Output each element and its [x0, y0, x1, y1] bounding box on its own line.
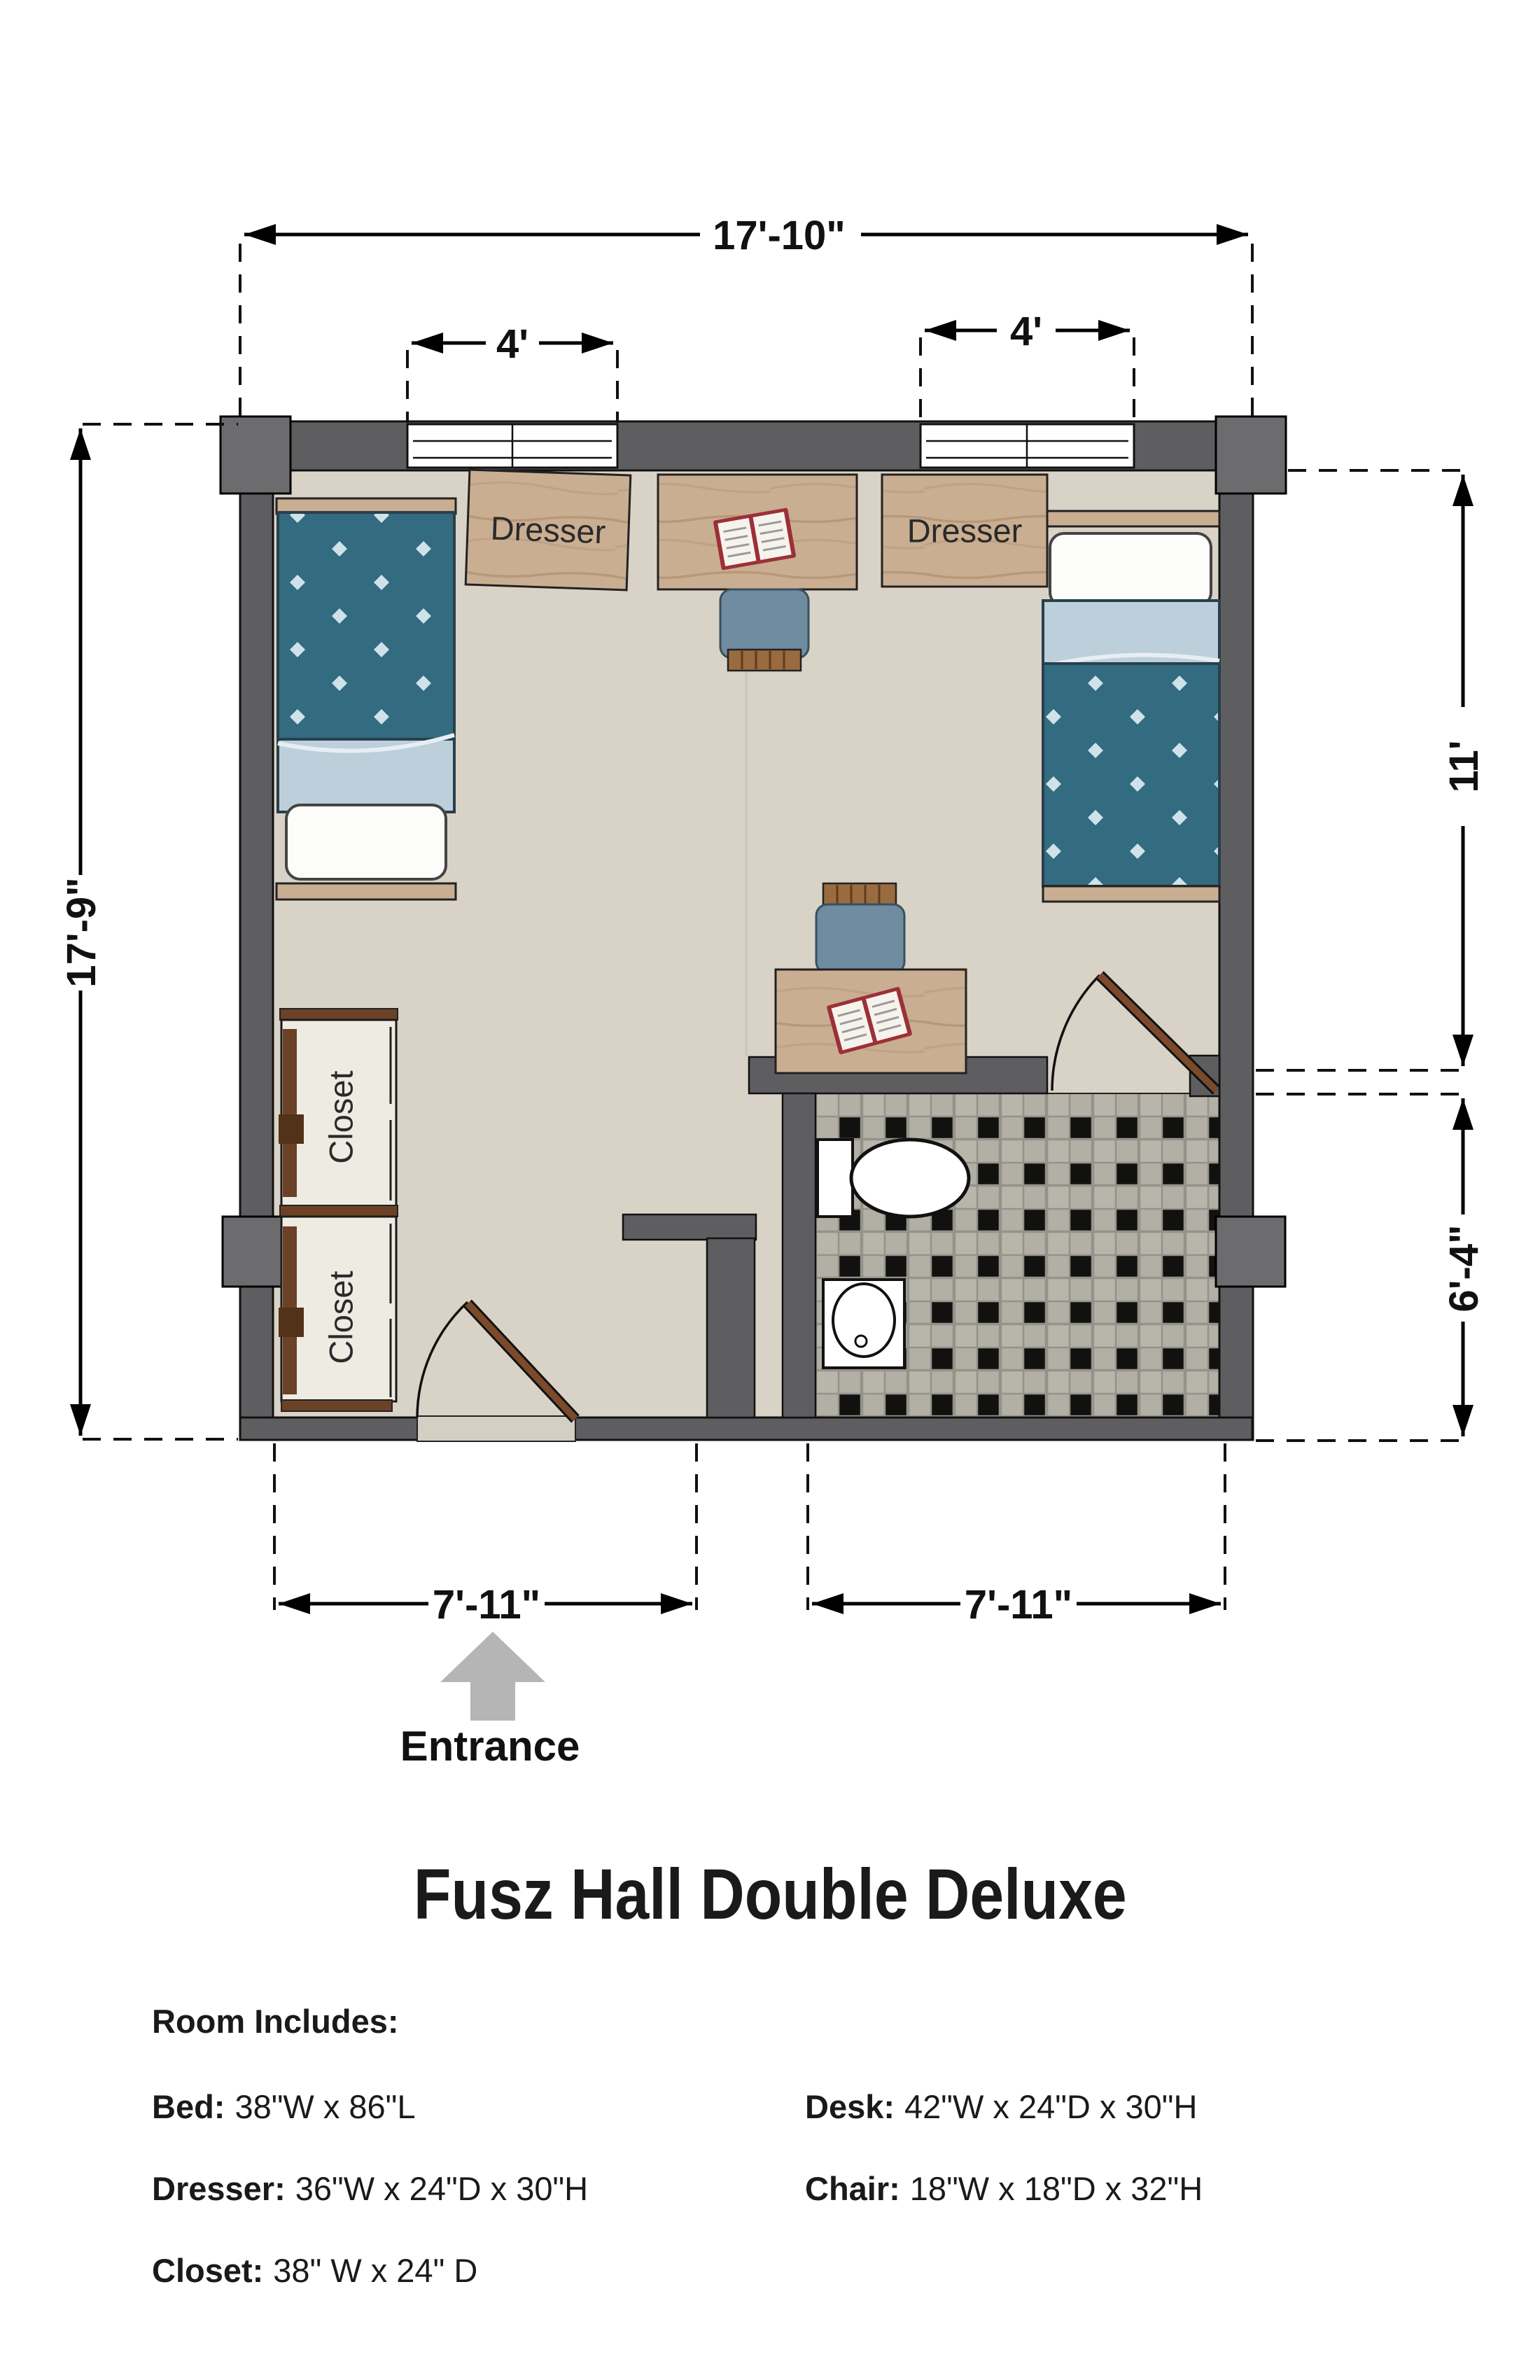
legend-heading: Room Includes: — [152, 2002, 399, 2040]
legend-item-value: 38" W x 24" D — [273, 2252, 477, 2289]
wall-bottom — [240, 1417, 1252, 1440]
floor-plan-page: Closet Closet Dresser Dresser — [0, 0, 1540, 2380]
entrance-marker: Entrance — [400, 1632, 580, 1770]
legend-item-label: Bed: — [152, 2088, 225, 2125]
closet-lower-label: Closet — [322, 1270, 359, 1364]
wing-wall-horizontal — [623, 1214, 756, 1240]
chair-top-back — [728, 650, 801, 671]
legend-item-label: Chair: — [805, 2170, 900, 2207]
svg-text:17'-9": 17'-9" — [59, 877, 104, 987]
pilaster-top-right — [1216, 416, 1286, 493]
chair-top — [720, 589, 808, 671]
chair-bottom-seat — [816, 904, 904, 973]
toilet-bowl — [851, 1140, 969, 1217]
chair-bottom — [816, 883, 904, 973]
legend-item-closet: Closet:38" W x 24" D — [152, 2251, 477, 2290]
dim-window-right: 4' — [925, 309, 1130, 354]
bed-left — [276, 498, 456, 899]
legend-item-dresser: Dresser:36"W x 24"D x 30"H — [152, 2169, 588, 2208]
svg-text:4': 4' — [496, 321, 528, 367]
svg-text:7'-11": 7'-11" — [433, 1582, 540, 1627]
bed-right — [1043, 511, 1219, 902]
entrance-arrow-icon — [440, 1632, 545, 1721]
desk-bottom — [776, 969, 966, 1073]
dresser-right: Dresser — [882, 475, 1047, 587]
chair-top-seat — [720, 589, 808, 658]
bed-right-blanket — [1043, 664, 1219, 886]
legend-item-value: 42"W x 24"D x 30"H — [904, 2088, 1197, 2125]
legend-item-label: Closet: — [152, 2252, 263, 2289]
legend-item-chair: Chair:18"W x 18"D x 32"H — [805, 2169, 1203, 2208]
bed-left-pillow — [286, 805, 446, 879]
pilaster-mid-right — [1216, 1217, 1285, 1287]
closets: Closet Closet — [279, 1009, 398, 1411]
toilet — [818, 1140, 969, 1217]
dim-overall-depth: 17'-9" — [59, 428, 104, 1436]
closet-upper-rod — [283, 1029, 297, 1197]
pilaster-top-left — [220, 416, 290, 493]
legend-item-value: 36"W x 24"D x 30"H — [295, 2170, 588, 2207]
dim-window-left: 4' — [412, 321, 613, 367]
bed-right-pillow — [1050, 533, 1211, 606]
closet-bottom-trim — [281, 1400, 392, 1411]
closet-upper-rod-block — [279, 1114, 304, 1144]
bed-left-footboard — [276, 883, 456, 899]
dim-overall-width: 17'-10" — [244, 213, 1248, 258]
chair-bottom-back — [823, 883, 896, 906]
svg-text:11': 11' — [1441, 740, 1487, 792]
closet-lower-rod-block — [279, 1308, 304, 1337]
entrance-label: Entrance — [400, 1723, 580, 1770]
bed-left-blanket — [278, 512, 454, 745]
legend-item-bed: Bed:38"W x 86"L — [152, 2087, 416, 2126]
dim-bottom-right: 7'-11" — [812, 1582, 1221, 1627]
svg-text:17'-10": 17'-10" — [713, 213, 846, 258]
legend-item-desk: Desk:42"W x 24"D x 30"H — [805, 2087, 1197, 2126]
legend-item-label: Desk: — [805, 2088, 895, 2125]
closet-top-trim — [280, 1009, 398, 1020]
dresser-left: Dresser — [465, 470, 631, 590]
svg-text:7'-11": 7'-11" — [965, 1582, 1072, 1627]
dim-bath-depth: 6'-4" — [1441, 1098, 1487, 1436]
toilet-tank — [818, 1140, 853, 1217]
window-left — [407, 424, 617, 468]
window-right — [920, 424, 1134, 468]
wing-wall-vertical — [707, 1238, 755, 1417]
closet-upper-label: Closet — [322, 1070, 359, 1163]
sink — [823, 1280, 904, 1368]
floor-plan: Closet Closet Dresser Dresser — [0, 0, 1540, 1820]
closet-divider-trim — [280, 1205, 398, 1217]
bath-wall-left — [783, 1093, 815, 1417]
svg-text:4': 4' — [1010, 309, 1042, 354]
bed-right-headboard — [1043, 511, 1219, 526]
legend-item-value: 18"W x 18"D x 32"H — [910, 2170, 1203, 2207]
legend-item-value: 38"W x 86"L — [234, 2088, 415, 2125]
desk-top — [658, 475, 857, 589]
svg-text:6'-4": 6'-4" — [1441, 1224, 1487, 1312]
dim-room-depth: 11' — [1441, 475, 1487, 1066]
legend-item-label: Dresser: — [152, 2170, 286, 2207]
bed-right-footboard — [1043, 886, 1219, 902]
dresser-right-label: Dresser — [907, 512, 1023, 549]
dresser-left-label: Dresser — [490, 510, 606, 551]
page-title: Fusz Hall Double Deluxe — [0, 1854, 1540, 1935]
dim-bottom-left: 7'-11" — [279, 1582, 692, 1627]
entrance-opening — [417, 1416, 575, 1441]
